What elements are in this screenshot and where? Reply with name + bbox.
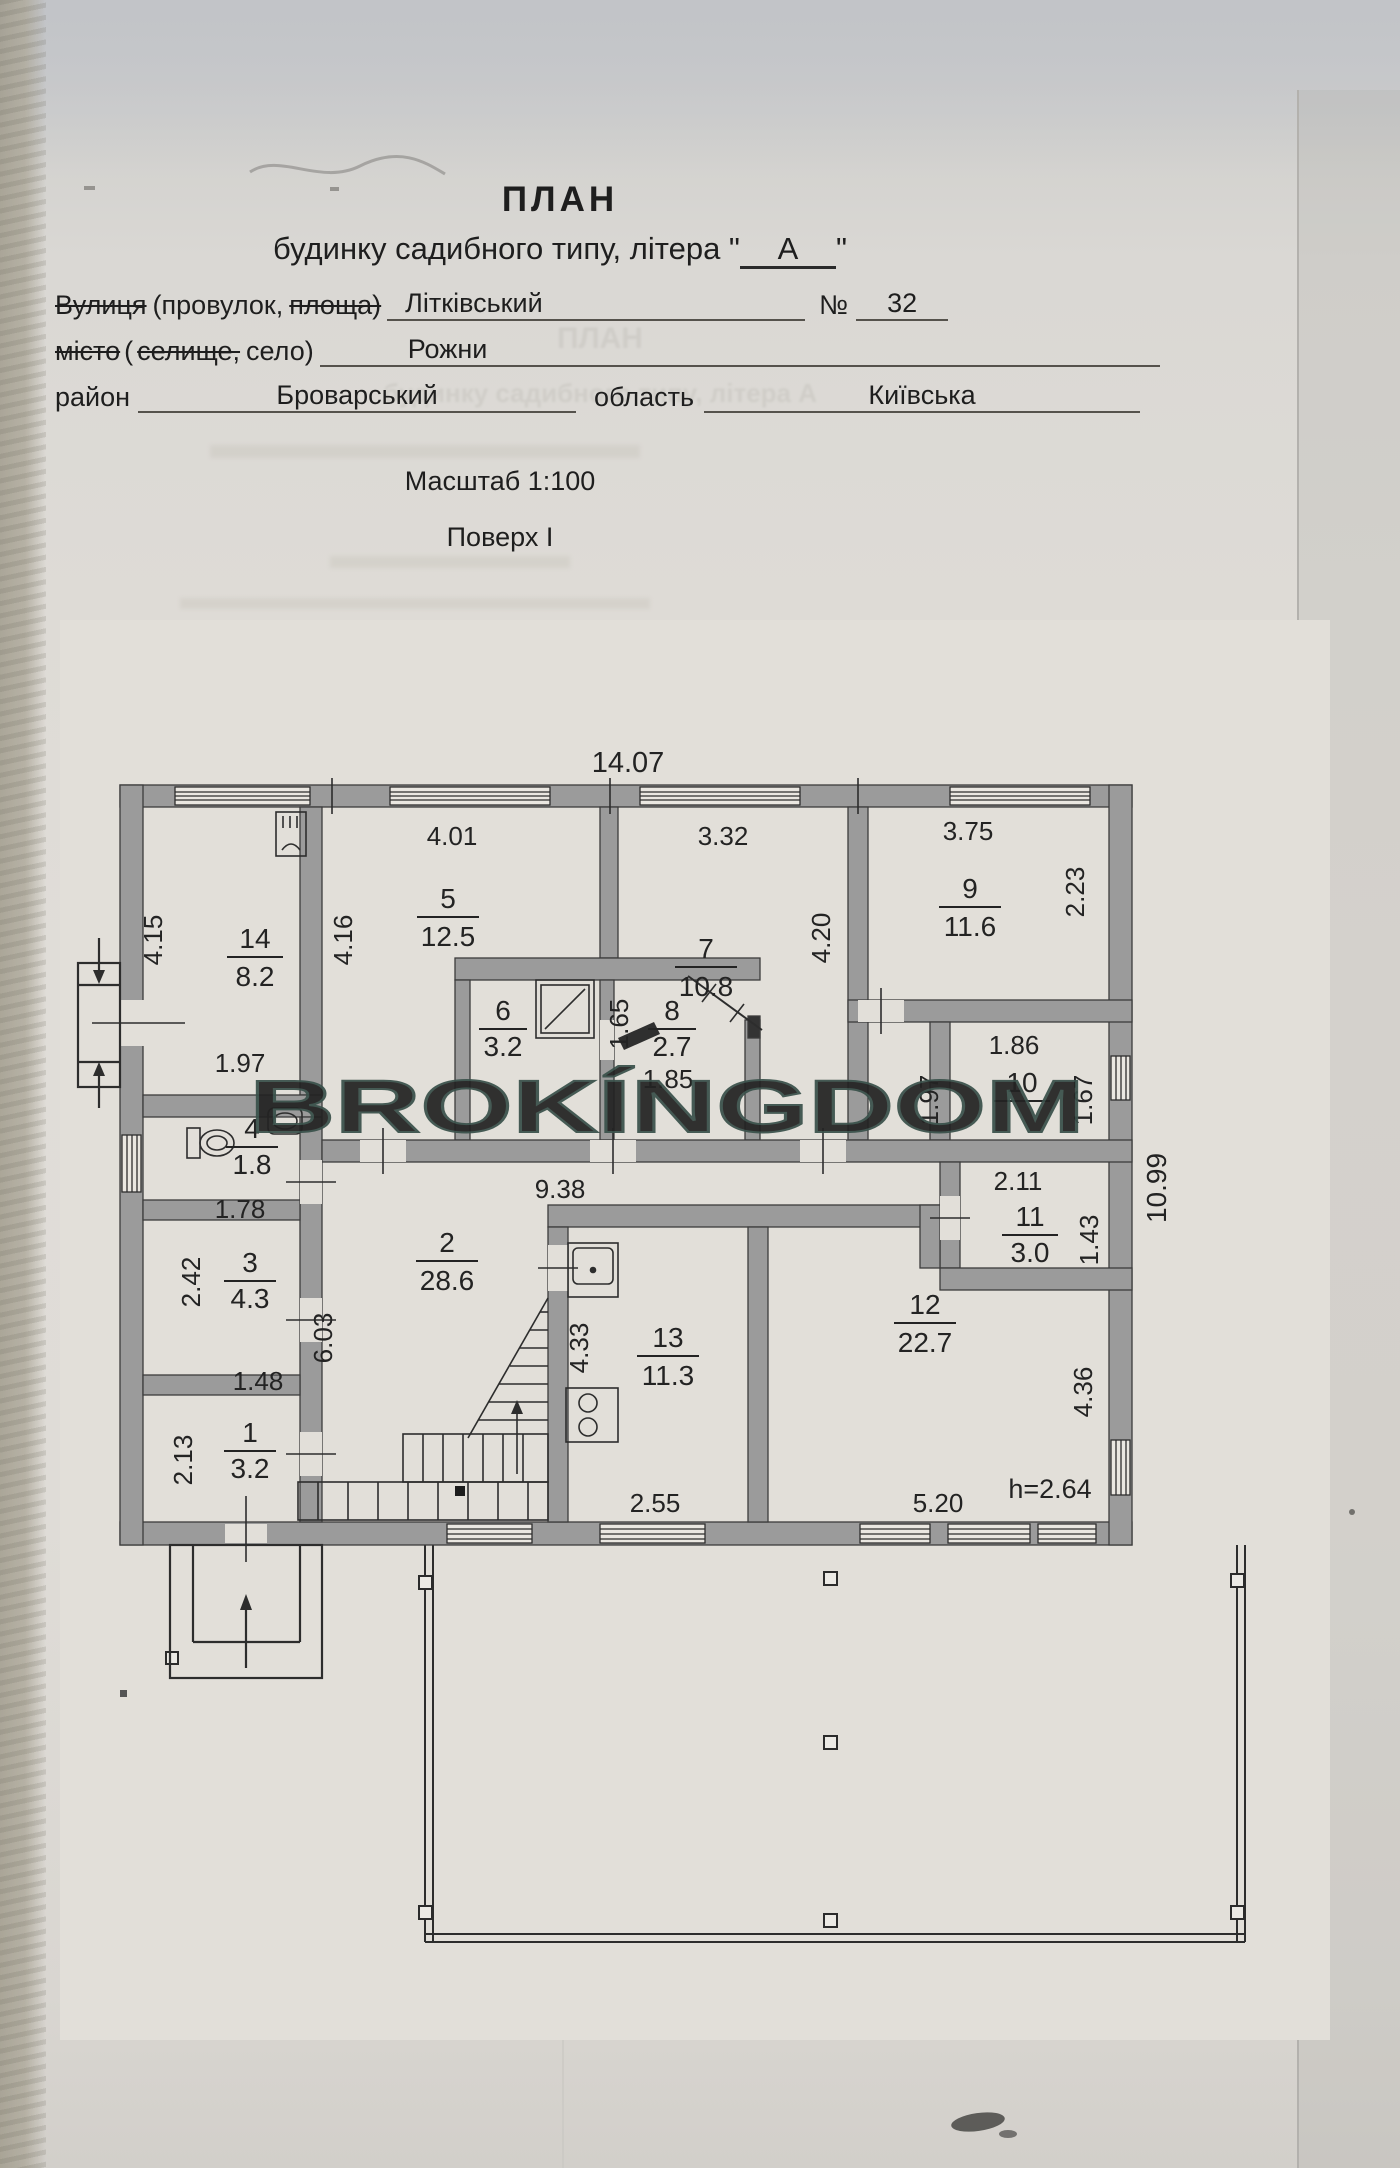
number-label: №: [819, 290, 848, 321]
page-title: ПЛАН: [0, 180, 1120, 220]
dim-h1: 2.13: [168, 1435, 198, 1486]
svg-text:14: 14: [239, 923, 270, 954]
dim-w10: 1.86: [989, 1030, 1040, 1060]
svg-text:12: 12: [909, 1289, 940, 1320]
svg-text:10.8: 10.8: [679, 971, 734, 1002]
street-label: (провулок,: [153, 290, 284, 321]
svg-text:3.2: 3.2: [231, 1453, 270, 1484]
svg-text:11.3: 11.3: [642, 1360, 694, 1391]
dim-h11: 1.43: [1074, 1215, 1104, 1266]
svg-text:8: 8: [664, 995, 680, 1026]
scanned-document-page: ПЛАН будинку садибного типу, літера А ПЛ…: [0, 0, 1400, 2168]
dim-right-height: 10.99: [1141, 1153, 1172, 1223]
dim-w5: 4.01: [427, 821, 478, 851]
svg-text:11: 11: [1015, 1201, 1044, 1232]
dim-b12: 5.20: [913, 1488, 964, 1518]
svg-text:1.8: 1.8: [233, 1149, 272, 1180]
svg-text:2: 2: [439, 1227, 455, 1258]
plan-paper: [60, 620, 1330, 2040]
number-value: 32: [856, 288, 948, 321]
svg-text:3.2: 3.2: [484, 1031, 523, 1062]
ceiling-height-label: h=2.64: [1008, 1474, 1091, 1504]
svg-text:8.2: 8.2: [236, 961, 275, 992]
dim-h3: 2.42: [176, 1257, 206, 1308]
oblast-value: Київська: [704, 380, 1140, 413]
settlement-open: (: [124, 336, 133, 367]
dim-h8: 1.65: [604, 999, 634, 1050]
dim-w1: 1.48: [233, 1366, 284, 1396]
street-label-struck: Вулиця: [55, 290, 147, 321]
oblast-label: область: [594, 382, 694, 413]
district-value: Броварський: [138, 380, 576, 413]
dim-h2: 6.03: [308, 1313, 338, 1364]
dim-h7: 4.20: [806, 913, 836, 964]
svg-text:1: 1: [242, 1417, 258, 1448]
settlement-row: місто ( селище, село) Рожни: [55, 334, 1160, 367]
svg-text:28.6: 28.6: [420, 1265, 475, 1296]
svg-text:3.0: 3.0: [1011, 1237, 1050, 1268]
svg-text:4.3: 4.3: [231, 1283, 270, 1314]
scale-line: Масштаб 1:100: [150, 466, 850, 497]
dim-h9: 2.23: [1060, 867, 1090, 918]
street-label-struck2: площа): [289, 290, 381, 321]
svg-text:9: 9: [962, 873, 978, 904]
dim-h13: 4.33: [564, 1323, 594, 1374]
dim-h5: 4.16: [328, 915, 358, 966]
subtitle-text: будинку садибного типу, літера ": [273, 231, 740, 266]
brokingdom-watermark: BROKÍNGDOM: [250, 1065, 1085, 1148]
dim-b13: 2.55: [630, 1488, 681, 1518]
dim-h14: 4.15: [138, 915, 168, 966]
settlement-label-end: село): [246, 336, 314, 367]
floor-line: Поверх I: [150, 522, 850, 553]
settlement-label-struck2: селище,: [137, 336, 240, 367]
settlement-label-struck: місто: [55, 336, 120, 367]
settlement-value: Рожни: [320, 334, 1160, 367]
street-row: Вулиця (провулок, площа) Літківський № 3…: [55, 288, 1160, 321]
subtitle-close-quote: ": [836, 231, 847, 266]
dim-w7: 3.32: [698, 821, 749, 851]
svg-text:6: 6: [495, 995, 511, 1026]
district-row: район Броварський область Київська: [55, 380, 1160, 413]
district-label: район: [55, 382, 130, 413]
svg-text:3: 3: [242, 1247, 258, 1278]
dim-corridor: 9.38: [535, 1174, 586, 1204]
floor-plan: 148.2 512.5 710.8 911.6 63.2 82.7 10 113…: [0, 0, 1400, 2168]
svg-text:5: 5: [440, 883, 456, 914]
handwriting-mark: [250, 157, 445, 174]
svg-text:2.7: 2.7: [653, 1031, 692, 1062]
dim-h12: 4.36: [1068, 1367, 1098, 1418]
building-letter: А: [740, 232, 836, 269]
svg-text:11.6: 11.6: [944, 911, 996, 942]
dim-top-width: 14.07: [592, 747, 665, 779]
ink-smudge: [950, 2109, 1006, 2134]
svg-text:7: 7: [698, 933, 714, 964]
svg-text:12.5: 12.5: [421, 921, 476, 952]
dim-w11: 2.11: [994, 1166, 1043, 1196]
page-subtitle: будинку садибного типу, літера "А": [0, 231, 1120, 269]
dim-w9: 3.75: [943, 816, 994, 846]
dim-w3: 1.78: [215, 1194, 266, 1224]
street-value: Літківський: [387, 288, 805, 321]
svg-text:22.7: 22.7: [898, 1327, 953, 1358]
svg-text:13: 13: [652, 1322, 683, 1353]
